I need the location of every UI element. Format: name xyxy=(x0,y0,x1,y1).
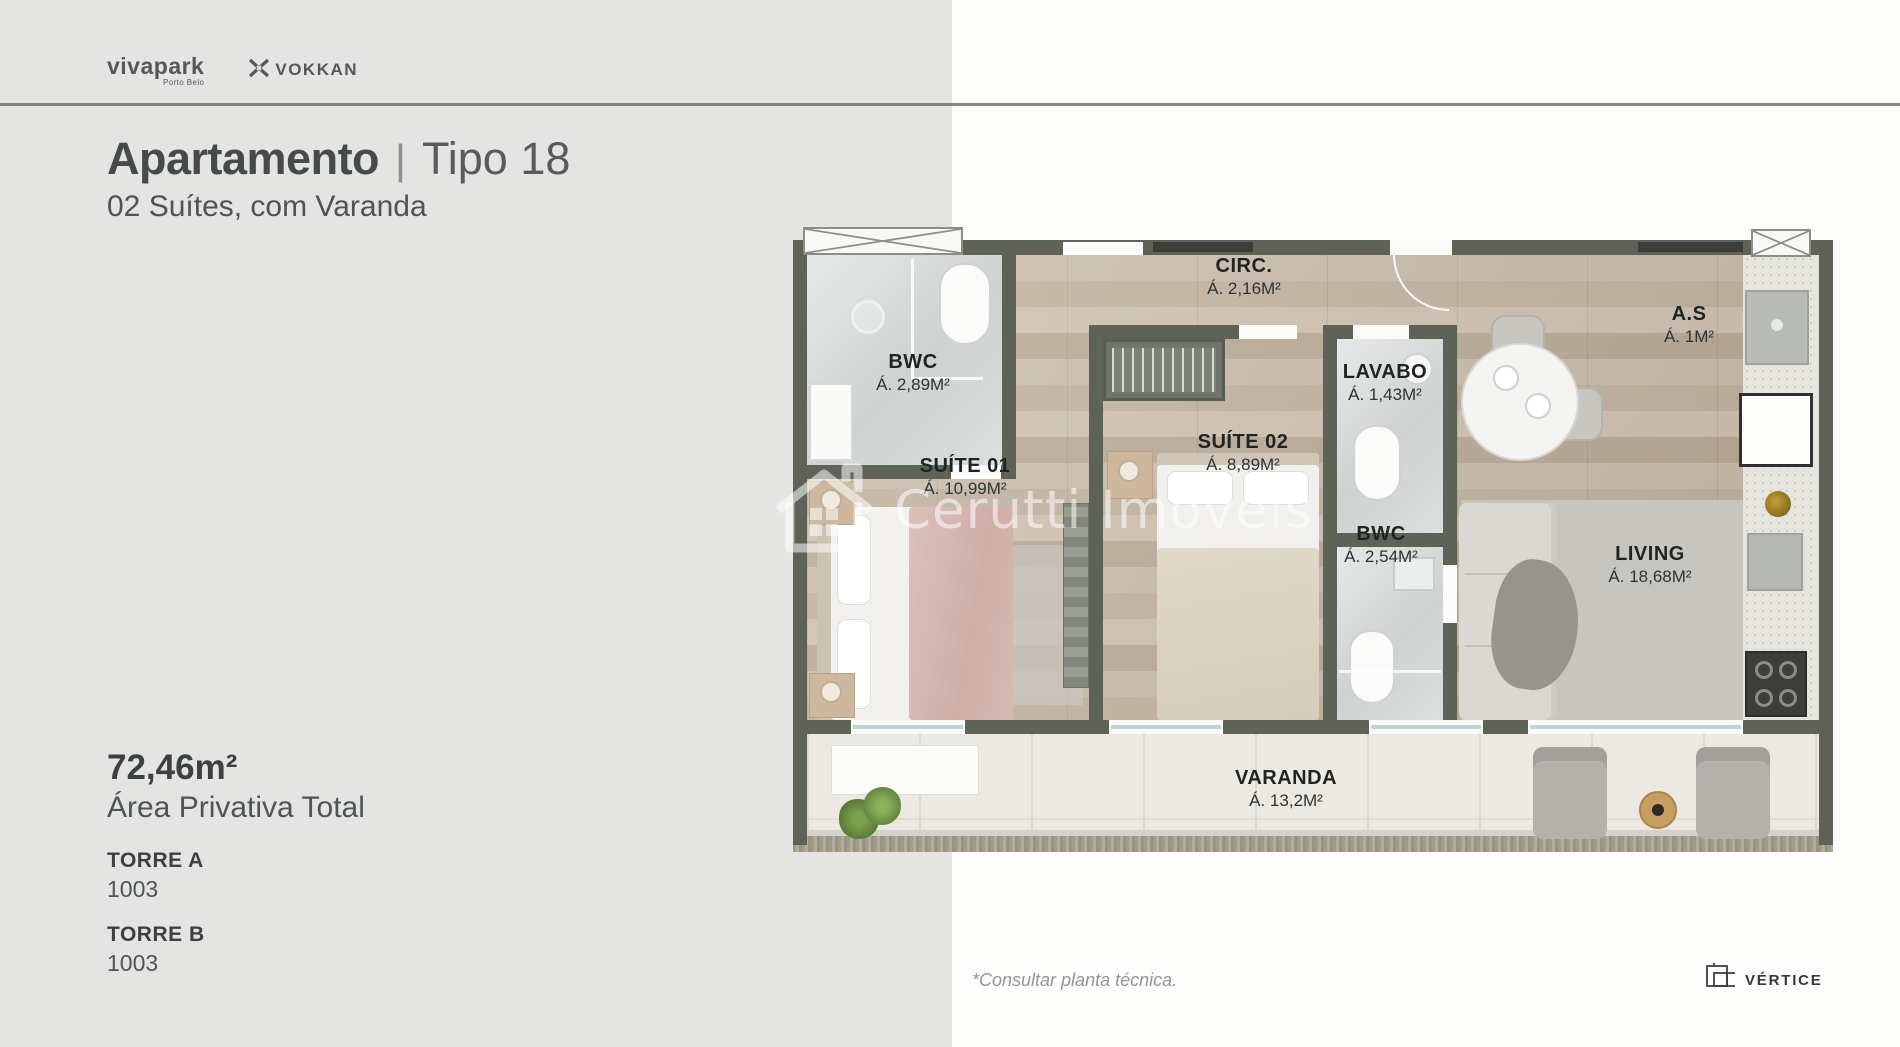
stove xyxy=(1745,651,1807,717)
entry-door-gap xyxy=(1390,240,1452,255)
tower-a-block: TORRE A 1003 xyxy=(107,849,204,903)
label-suite02: SUÍTE 02 Á. 8,89M² xyxy=(1198,431,1289,475)
fridge xyxy=(1739,393,1813,467)
varanda-glass-4 xyxy=(1530,725,1741,729)
label-lavabo: LAVABO Á. 1,43M² xyxy=(1343,361,1427,405)
label-bwc2: BWC Á. 2,54M² xyxy=(1344,523,1418,567)
bwc2-door-gap xyxy=(1443,565,1457,623)
floor-plan: BWC Á. 2,89M² CIRC. Á. 2,16M² A.S Á. 1M²… xyxy=(793,215,1833,852)
plate-2 xyxy=(1525,393,1551,419)
window-circ xyxy=(1063,242,1143,255)
dining-table xyxy=(1461,343,1579,461)
tower-b-block: TORRE B 1003 xyxy=(107,923,205,977)
shower-head xyxy=(851,300,885,334)
suite01-pillow-1 xyxy=(837,515,871,605)
suite02-pillow-1 xyxy=(1167,471,1233,505)
label-circ: CIRC. Á. 2,16M² xyxy=(1207,255,1281,299)
varanda-armchair-1 xyxy=(1533,747,1607,839)
vokkan-wordmark: VOKKAN xyxy=(275,60,358,80)
label-as: A.S Á. 1M² xyxy=(1664,303,1714,347)
tower-b-name: TORRE B xyxy=(107,923,205,947)
tower-a-unit: 1003 xyxy=(107,876,204,903)
label-bwc1: BWC Á. 2,89M² xyxy=(876,351,950,395)
area-label: Área Privativa Total xyxy=(107,791,365,825)
title-block: Apartamento | Tipo 18 02 Suítes, com Var… xyxy=(107,133,570,224)
vertice-wordmark: VÉRTICE xyxy=(1745,972,1823,989)
kitchen-sink-lower xyxy=(1747,533,1803,591)
toilet-lavabo xyxy=(1353,425,1401,501)
tower-a-name: TORRE A xyxy=(107,849,204,873)
area-value: 72,46m² xyxy=(107,748,365,788)
wall-left xyxy=(793,240,807,845)
vokkan-x-icon xyxy=(248,58,270,83)
fruit-bowl xyxy=(1765,491,1791,517)
wall-bwc1-right xyxy=(1002,240,1016,479)
title-type: Tipo 18 xyxy=(422,133,570,185)
varanda-armchair-2 xyxy=(1696,747,1770,839)
suite02-beige-blanket xyxy=(1157,548,1319,720)
suite02-door-gap xyxy=(1239,325,1297,339)
suite01-lamp-top xyxy=(820,489,842,511)
wall-lavabo-left xyxy=(1323,325,1337,720)
plate-1 xyxy=(1493,365,1519,391)
vivapark-subtitle: Porto Belo xyxy=(163,78,204,87)
bwc2-glass-panel xyxy=(1339,670,1441,673)
label-living: LIVING Á. 18,68M² xyxy=(1608,543,1691,587)
varanda-glass-2 xyxy=(1111,725,1221,729)
suite01-lamp-bottom xyxy=(820,681,842,703)
suite01-pink-blanket xyxy=(909,507,1013,720)
vivapark-logo: vivapark Porto Belo xyxy=(107,53,204,87)
label-varanda: VARANDA Á. 13,2M² xyxy=(1235,767,1337,811)
varanda-plant xyxy=(839,787,901,845)
tower-b-unit: 1003 xyxy=(107,950,205,977)
suite02-lamp xyxy=(1118,460,1140,482)
wall-circ-suite02 xyxy=(1089,325,1239,339)
grass-strip xyxy=(793,836,1833,852)
window-x-topleft xyxy=(803,227,963,255)
header-divider-line xyxy=(0,103,1900,106)
vent-top-2 xyxy=(1638,242,1743,252)
suite02-closet xyxy=(1103,339,1225,401)
vivapark-wordmark: vivapark xyxy=(107,53,204,80)
title-apartment: Apartamento xyxy=(107,133,379,185)
footnote: *Consultar planta técnica. xyxy=(972,970,1177,991)
wall-lavabo-right xyxy=(1443,325,1457,720)
vanity-bwc1 xyxy=(809,383,853,461)
suite02-pillow-2 xyxy=(1243,471,1309,505)
window-x-topright xyxy=(1751,229,1811,257)
vertice-logo-icon xyxy=(1706,962,1736,999)
varanda-glass-3 xyxy=(1371,725,1481,729)
wall-right xyxy=(1819,240,1833,845)
wall-suites-divider xyxy=(1089,325,1103,720)
title-separator: | xyxy=(395,136,406,184)
page-subtitle: 02 Suítes, com Varanda xyxy=(107,190,570,224)
varanda-glass-1 xyxy=(853,725,963,729)
label-suite01: SUÍTE 01 Á. 10,99M² xyxy=(920,455,1011,499)
toilet-bwc1 xyxy=(939,263,991,345)
private-area-block: 72,46m² Área Privativa Total xyxy=(107,748,365,825)
lavabo-door-gap xyxy=(1353,325,1409,339)
suite01-wardrobe xyxy=(1063,503,1089,688)
vokkan-logo: VOKKAN xyxy=(248,58,358,83)
page-title: Apartamento | Tipo 18 xyxy=(107,133,570,185)
vent-top-1 xyxy=(1153,242,1253,252)
toilet-bwc2 xyxy=(1349,630,1395,704)
varanda-side-table xyxy=(1639,791,1677,829)
vertice-logo: VÉRTICE xyxy=(1706,962,1823,999)
kitchen-faucet xyxy=(1771,319,1783,331)
brand-logos: vivapark Porto Belo VOKKAN xyxy=(107,48,358,92)
